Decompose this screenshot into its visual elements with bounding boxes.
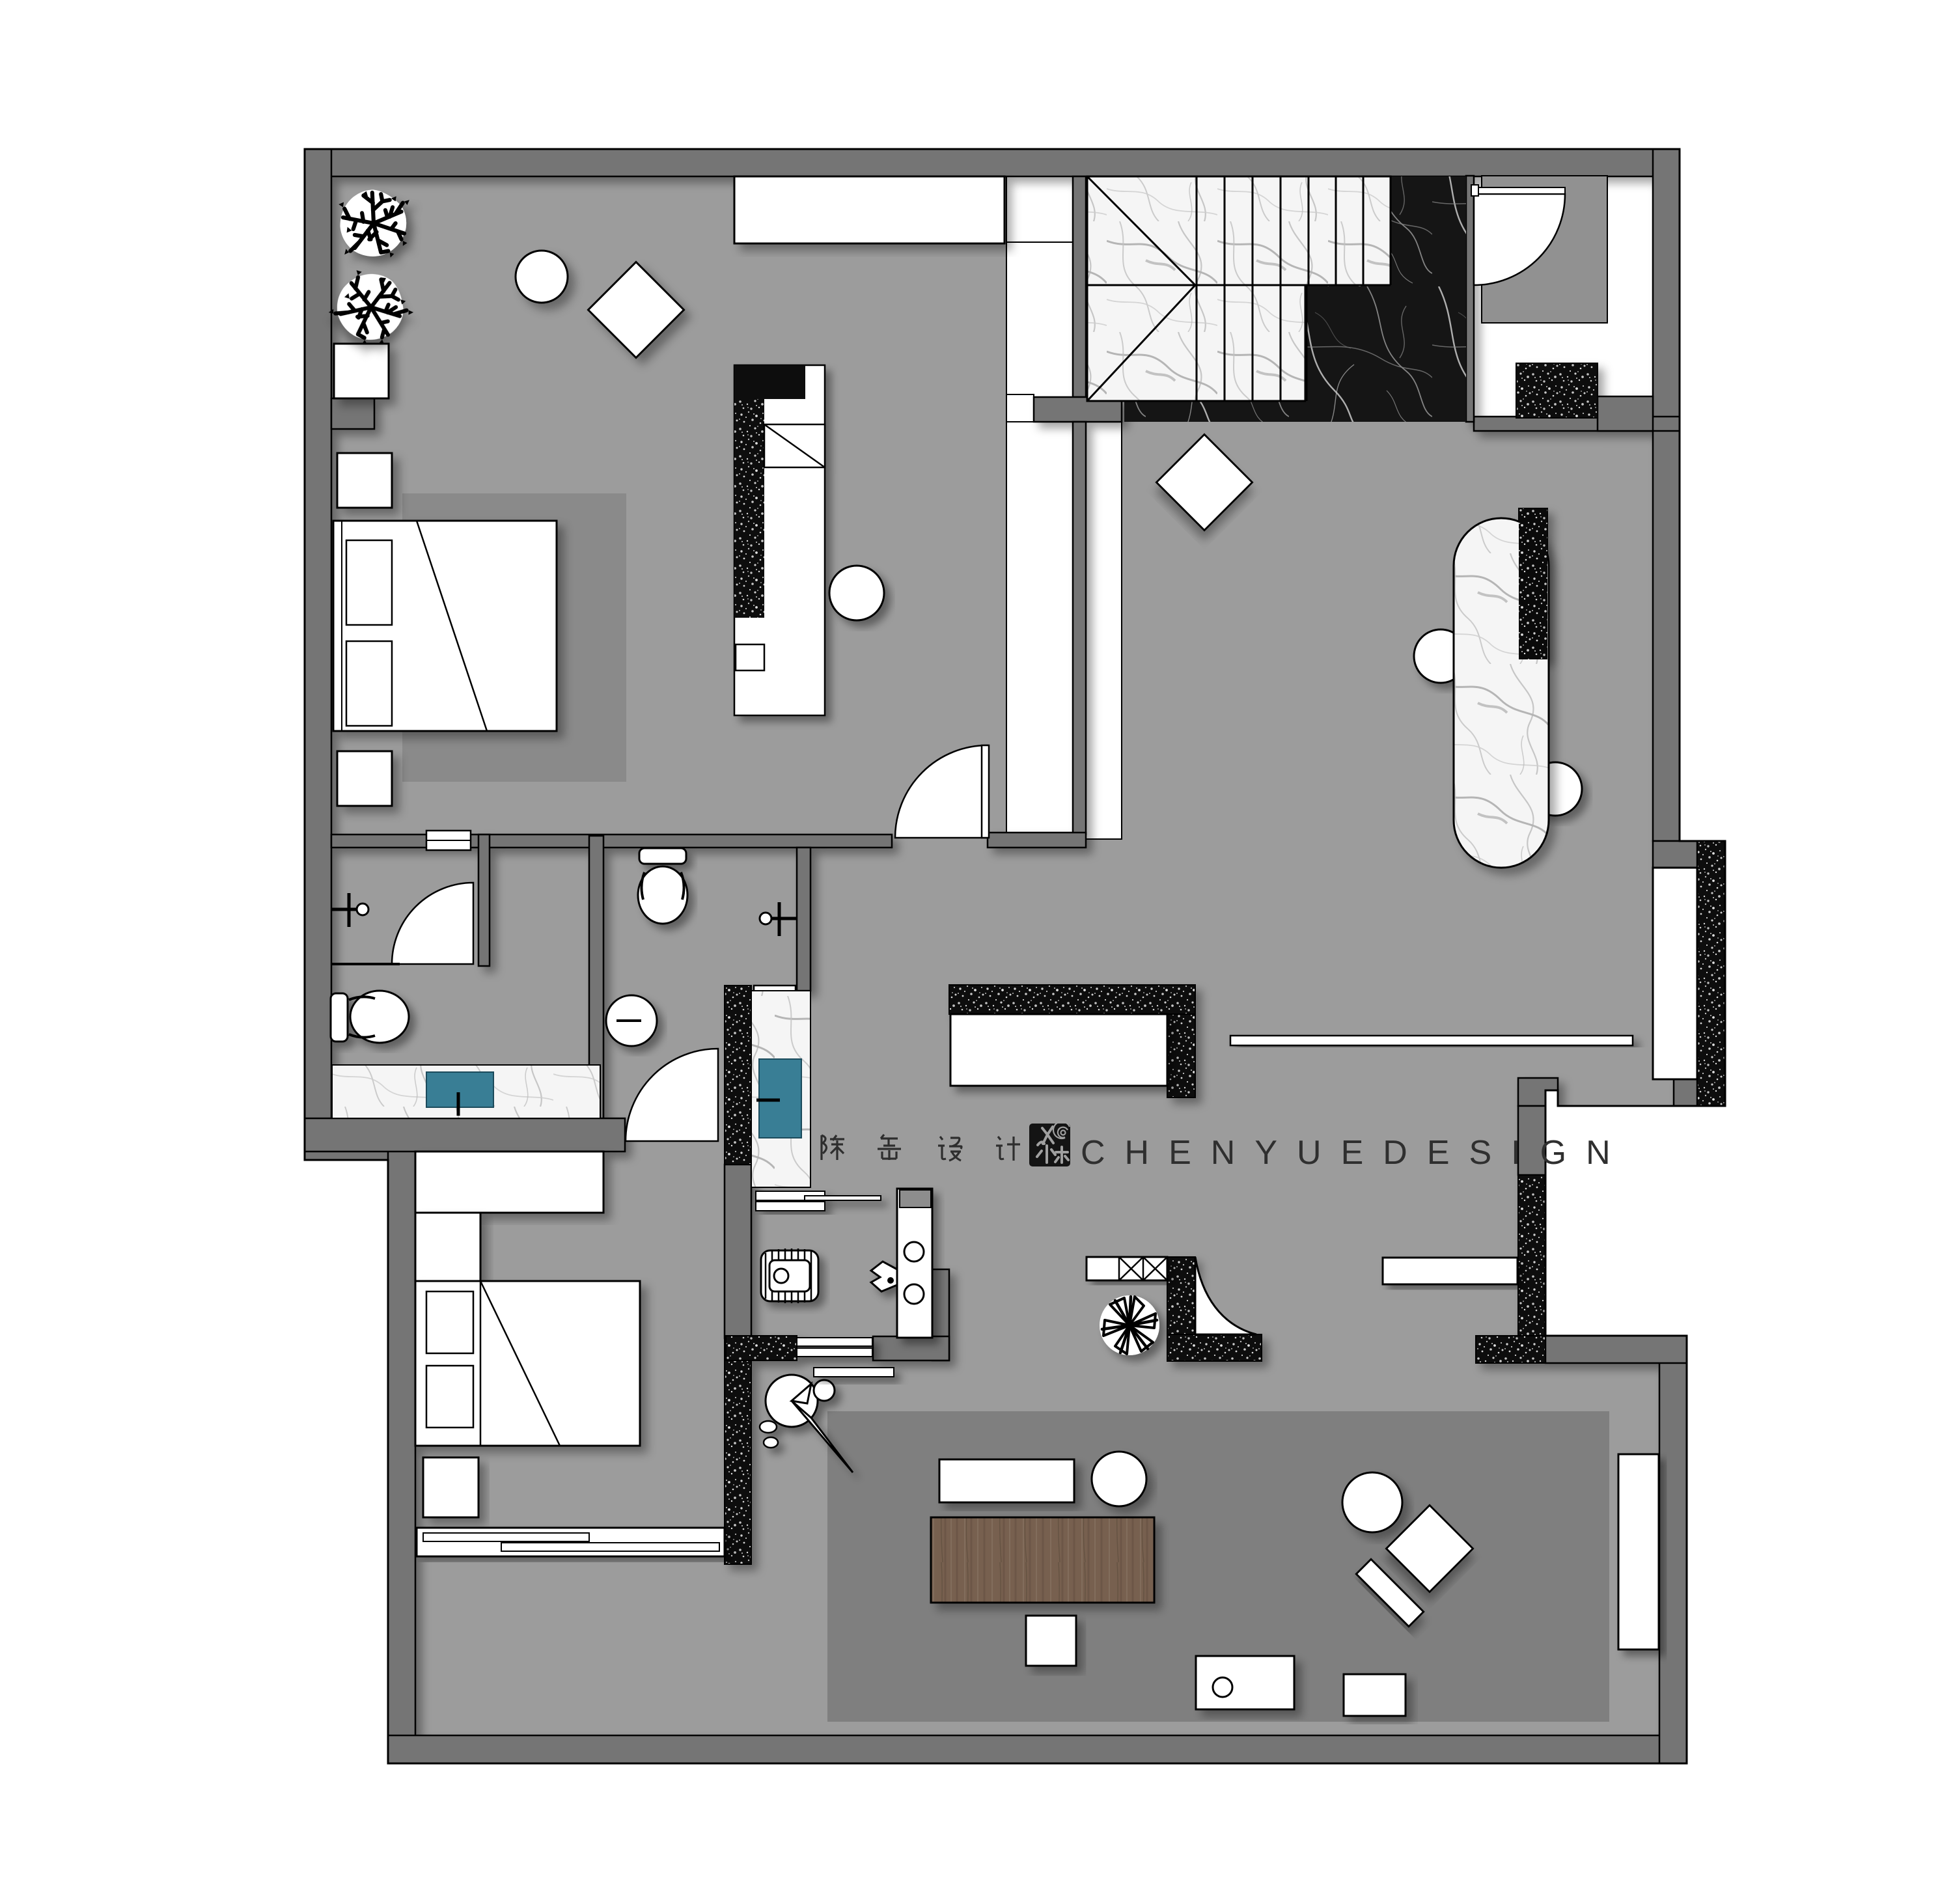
svg-text:CHENYUEDESIGN: CHENYUEDESIGN [1081, 1134, 1630, 1172]
